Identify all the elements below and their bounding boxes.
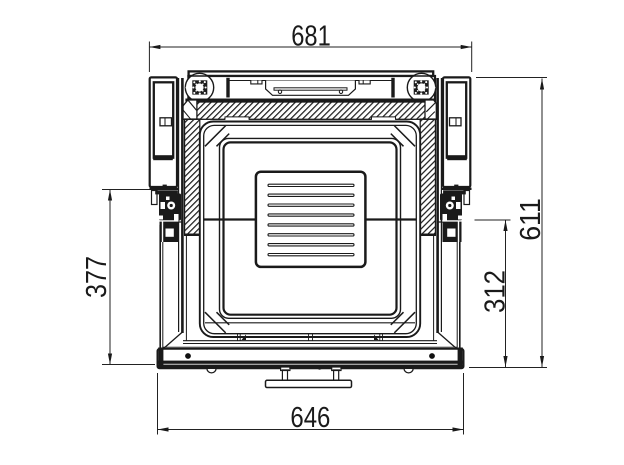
svg-text:312: 312 — [479, 270, 511, 313]
svg-text:646: 646 — [290, 402, 330, 434]
svg-text:611: 611 — [515, 198, 547, 241]
svg-text:681: 681 — [291, 20, 331, 52]
svg-text:377: 377 — [81, 256, 113, 298]
